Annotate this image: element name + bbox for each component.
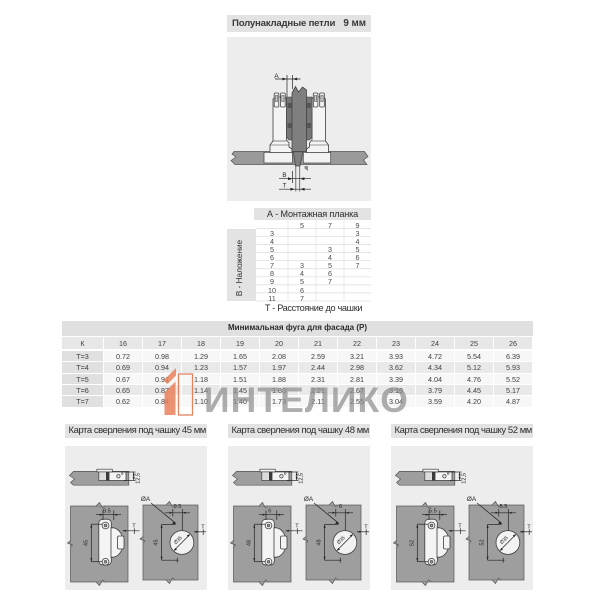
svg-text:5.5: 5.5	[429, 508, 437, 514]
svg-text:B: B	[282, 172, 286, 179]
svg-text:48: 48	[246, 540, 252, 546]
svg-text:52: 52	[480, 539, 486, 545]
svg-text:6: 6	[268, 508, 271, 514]
svg-text:ØA: ØA	[467, 496, 477, 503]
svg-text:12,5: 12,5	[136, 473, 142, 484]
svg-text:45: 45	[83, 540, 89, 546]
svg-text:T: T	[283, 183, 287, 190]
svg-text:45: 45	[154, 539, 160, 545]
svg-text:5.5: 5.5	[500, 504, 508, 510]
svg-text:52: 52	[409, 540, 415, 546]
svg-text:9.5: 9.5	[174, 504, 182, 510]
svg-text:48: 48	[317, 539, 323, 545]
svg-text:12,5: 12,5	[299, 473, 305, 484]
svg-text:ØA: ØA	[141, 496, 151, 503]
svg-text:ØA: ØA	[304, 496, 314, 503]
svg-text:6: 6	[339, 504, 342, 510]
svg-text:12,5: 12,5	[462, 473, 468, 484]
svg-text:9.5: 9.5	[103, 508, 111, 514]
